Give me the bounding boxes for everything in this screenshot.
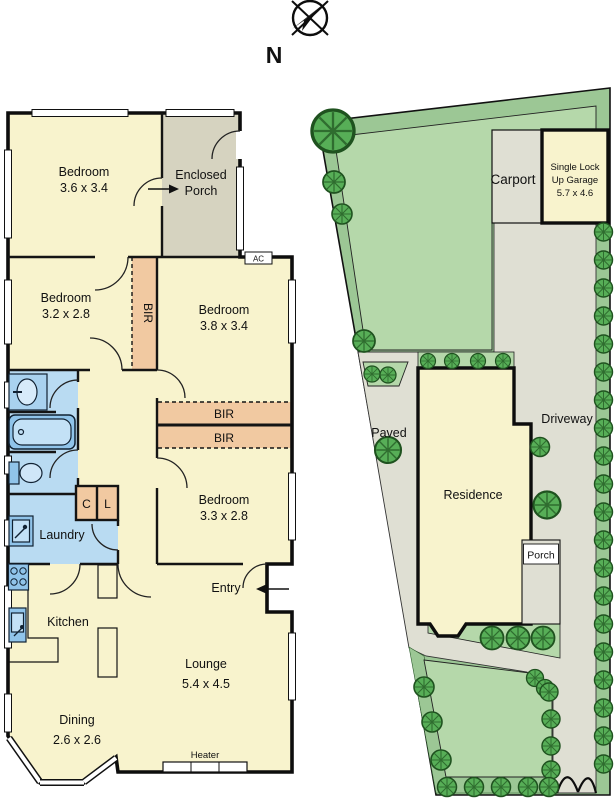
bush-icon <box>380 367 396 383</box>
bush-icon <box>595 307 613 325</box>
dining-label: Dining <box>59 713 94 727</box>
bush-icon <box>465 778 484 797</box>
bush-icon <box>595 615 613 633</box>
bir-side-label: BIR <box>141 303 155 323</box>
residence-label: Residence <box>443 488 502 502</box>
closet-c-label: C <box>82 497 91 511</box>
heater <box>163 762 247 772</box>
toilet <box>20 464 42 483</box>
bedroom1-dims: 3.6 x 3.4 <box>60 181 108 195</box>
bush-icon <box>595 643 613 661</box>
bush-icon <box>595 587 613 605</box>
bush-icon <box>323 171 345 193</box>
lounge-label: Lounge <box>185 657 227 671</box>
bush-icon <box>595 335 613 353</box>
north-label: N <box>266 42 283 68</box>
ac-label: AC <box>253 255 264 264</box>
bush-icon <box>540 778 559 797</box>
bush-icon <box>481 627 504 650</box>
floorplan-page: N <box>0 0 616 800</box>
bedroom3-dims: 3.8 x 3.4 <box>200 319 248 333</box>
bir-bottom-label: BIR <box>214 431 234 445</box>
bush-icon <box>595 671 613 689</box>
bush-icon <box>445 354 460 369</box>
residence <box>418 368 531 636</box>
bush-icon <box>595 223 613 241</box>
bush-icon <box>431 750 451 770</box>
garage-label: Single Lock <box>550 162 599 173</box>
bush-icon <box>414 677 434 697</box>
bedroom4-dims: 3.3 x 2.8 <box>200 509 248 523</box>
bedroom1-label: Bedroom <box>59 165 110 179</box>
bush-icon <box>332 204 352 224</box>
closet-l-label: L <box>104 497 111 511</box>
bush-icon <box>421 354 436 369</box>
laundry-label: Laundry <box>39 528 85 542</box>
stove <box>9 564 29 590</box>
bush-icon <box>534 492 561 519</box>
bedroom2-dims: 3.2 x 2.8 <box>42 307 90 321</box>
bush-icon <box>492 778 511 797</box>
bush-icon <box>595 531 613 549</box>
bush-icon <box>471 354 486 369</box>
bush-icon <box>496 354 511 369</box>
bush-icon <box>542 710 560 728</box>
bush-icon <box>595 727 613 745</box>
bedroom3-label: Bedroom <box>199 303 250 317</box>
bedroom4-label: Bedroom <box>199 493 250 507</box>
bush-icon <box>595 279 613 297</box>
bush-icon <box>595 475 613 493</box>
paved-label: Paved <box>371 426 406 440</box>
compass-icon: N <box>266 1 328 68</box>
bush-icon <box>542 737 560 755</box>
bush-icon <box>595 559 613 577</box>
enclosed-porch-label: Enclosed <box>175 168 226 182</box>
driveway-label: Driveway <box>541 412 593 426</box>
svg-text:Up Garage: Up Garage <box>552 175 598 186</box>
bush-icon <box>375 437 401 463</box>
bush-icon <box>507 627 530 650</box>
bush-icon <box>595 251 613 269</box>
site-plan: Carport Single Lock Up Garage 5.7 x 4.6 … <box>312 88 613 797</box>
carport-label: Carport <box>490 172 535 187</box>
bush-icon <box>540 683 558 701</box>
bush-icon <box>422 712 442 732</box>
bush-icon <box>364 366 380 382</box>
bush-icon <box>519 778 538 797</box>
garage-dims: 5.7 x 4.6 <box>557 188 593 199</box>
bush-icon <box>595 447 613 465</box>
entry-alcove <box>267 564 292 612</box>
dining-dims: 2.6 x 2.6 <box>53 733 101 747</box>
bush-icon <box>353 330 375 352</box>
bir-top-label: BIR <box>214 407 234 421</box>
bush-icon <box>595 755 613 773</box>
bush-icon <box>595 363 613 381</box>
bush-icon <box>595 391 613 409</box>
heater-label: Heater <box>191 750 220 761</box>
bush-icon <box>531 438 550 457</box>
porch-label: Porch <box>527 550 555 562</box>
floor-plan: Bedroom 3.6 x 3.4 Enclosed Porch Bedroom… <box>5 110 296 784</box>
bush-icon <box>595 419 613 437</box>
bush-icon <box>595 699 613 717</box>
floorplan-drawing: N <box>0 0 616 800</box>
entry-label: Entry <box>211 581 241 595</box>
lounge-dims: 5.4 x 4.5 <box>182 677 230 691</box>
kitchen-label: Kitchen <box>47 615 89 629</box>
bush-icon <box>532 627 555 650</box>
bush-icon <box>438 778 457 797</box>
svg-text:Porch: Porch <box>185 184 218 198</box>
bedroom2-label: Bedroom <box>41 291 92 305</box>
tree-icon <box>312 110 354 152</box>
porch-door-gap <box>236 131 244 159</box>
toilet-cistern <box>9 462 19 484</box>
bush-icon <box>595 503 613 521</box>
bush-icon <box>542 761 560 779</box>
